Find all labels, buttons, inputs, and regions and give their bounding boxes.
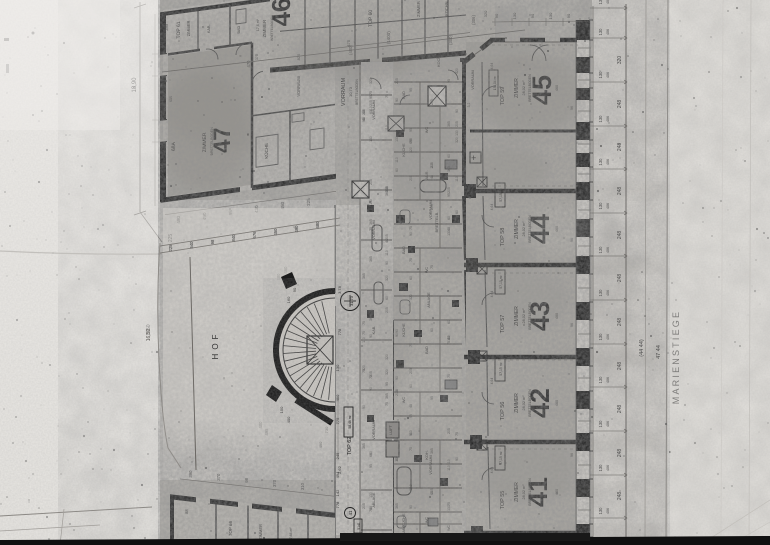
svg-text:245: 245 — [335, 452, 340, 459]
svg-text:41: 41 — [348, 510, 353, 516]
svg-text:225: 225 — [168, 244, 173, 252]
svg-text:TOP 62: TOP 62 — [347, 437, 353, 456]
svg-text:490: 490 — [294, 225, 299, 233]
svg-text:58,46 m²: 58,46 m² — [348, 414, 352, 428]
svg-text:142: 142 — [335, 489, 340, 496]
svg-text:840: 840 — [231, 234, 236, 242]
svg-text:450: 450 — [273, 228, 278, 236]
svg-text:5141: 5141 — [357, 522, 361, 530]
svg-text:2,62: 2,62 — [337, 465, 342, 474]
svg-text:16,50: 16,50 — [146, 329, 152, 342]
svg-text:480: 480 — [315, 221, 320, 229]
svg-text:HOF: HOF — [211, 331, 220, 360]
svg-text:98: 98 — [210, 239, 215, 244]
svg-text:540: 540 — [189, 241, 194, 249]
svg-text:676: 676 — [252, 231, 257, 239]
svg-text:778: 778 — [335, 501, 340, 508]
